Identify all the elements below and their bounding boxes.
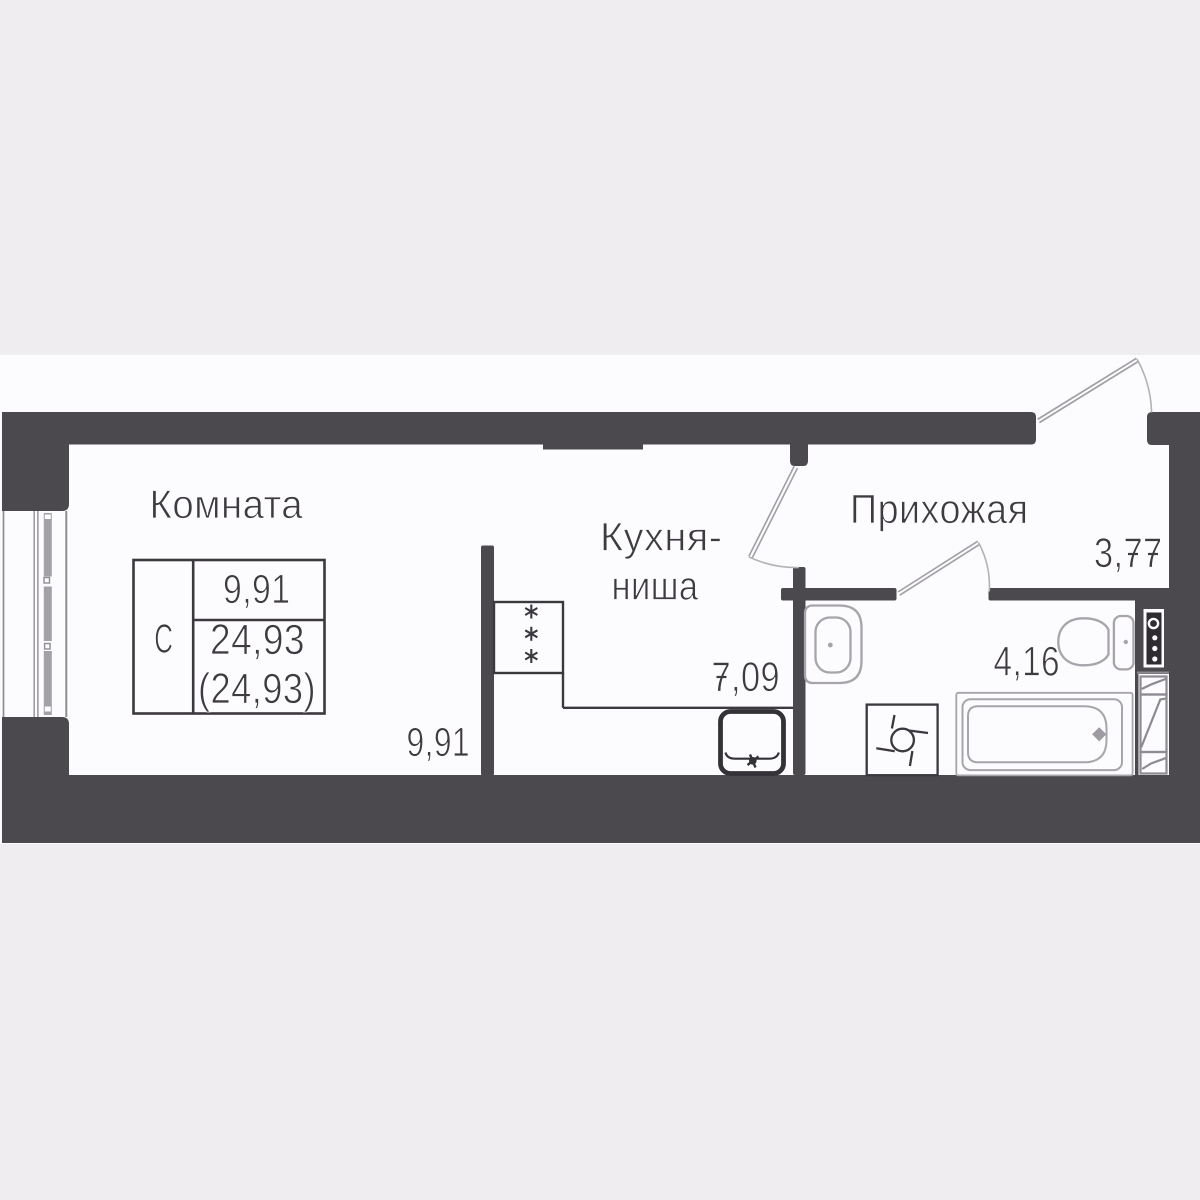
svg-text:Комната: Комната [150, 483, 304, 527]
svg-text:С: С [154, 616, 173, 662]
svg-text:Кухня-: Кухня- [600, 516, 723, 560]
svg-text:3,77: 3,77 [1094, 529, 1163, 576]
svg-text:4,16: 4,16 [994, 637, 1061, 684]
svg-text:9,91: 9,91 [407, 719, 471, 765]
svg-text:9,91: 9,91 [223, 566, 291, 612]
svg-text:ниша: ниша [612, 565, 699, 609]
svg-text:24,93: 24,93 [210, 616, 305, 664]
svg-text:Прихожая: Прихожая [850, 486, 1029, 532]
svg-text:(24,93): (24,93) [198, 666, 316, 713]
